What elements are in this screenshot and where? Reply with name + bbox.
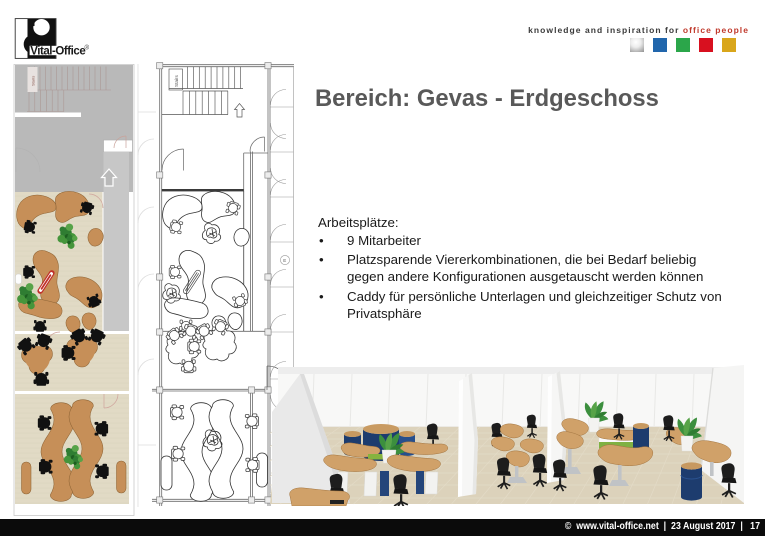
svg-text:E: E [283,258,286,263]
svg-text:®: ® [85,45,90,52]
svg-text:Stairs: Stairs [31,76,36,86]
svg-text:Stairs: Stairs [174,75,179,87]
